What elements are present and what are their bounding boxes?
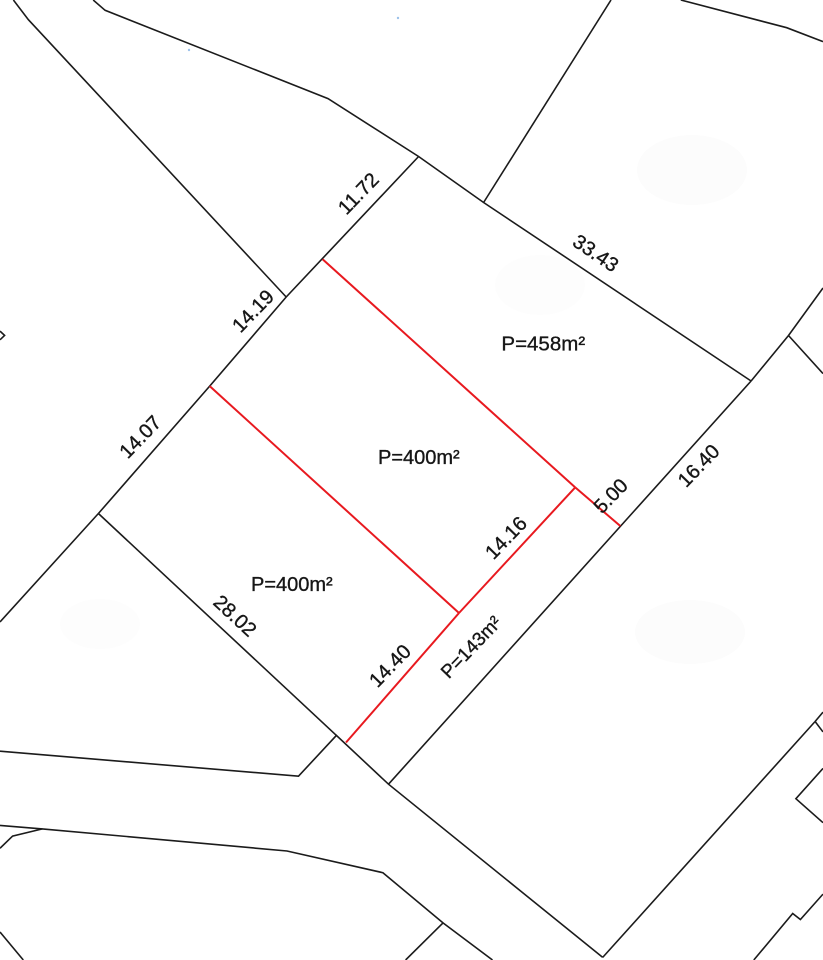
svg-text:14.40: 14.40 bbox=[365, 641, 416, 692]
svg-text:28.02: 28.02 bbox=[209, 591, 261, 641]
svg-text:14.16: 14.16 bbox=[481, 513, 532, 564]
svg-text:14.19: 14.19 bbox=[228, 286, 279, 337]
svg-text:11.72: 11.72 bbox=[334, 169, 384, 219]
svg-text:14.07: 14.07 bbox=[116, 412, 167, 463]
svg-text:16.40: 16.40 bbox=[674, 441, 725, 492]
svg-text:P=400m²: P=400m² bbox=[378, 447, 460, 469]
svg-text:5.00: 5.00 bbox=[590, 475, 633, 518]
svg-text:P=400m²: P=400m² bbox=[251, 574, 333, 596]
svg-text:P=458m²: P=458m² bbox=[501, 333, 585, 356]
svg-text:P=143m²: P=143m² bbox=[437, 613, 506, 683]
